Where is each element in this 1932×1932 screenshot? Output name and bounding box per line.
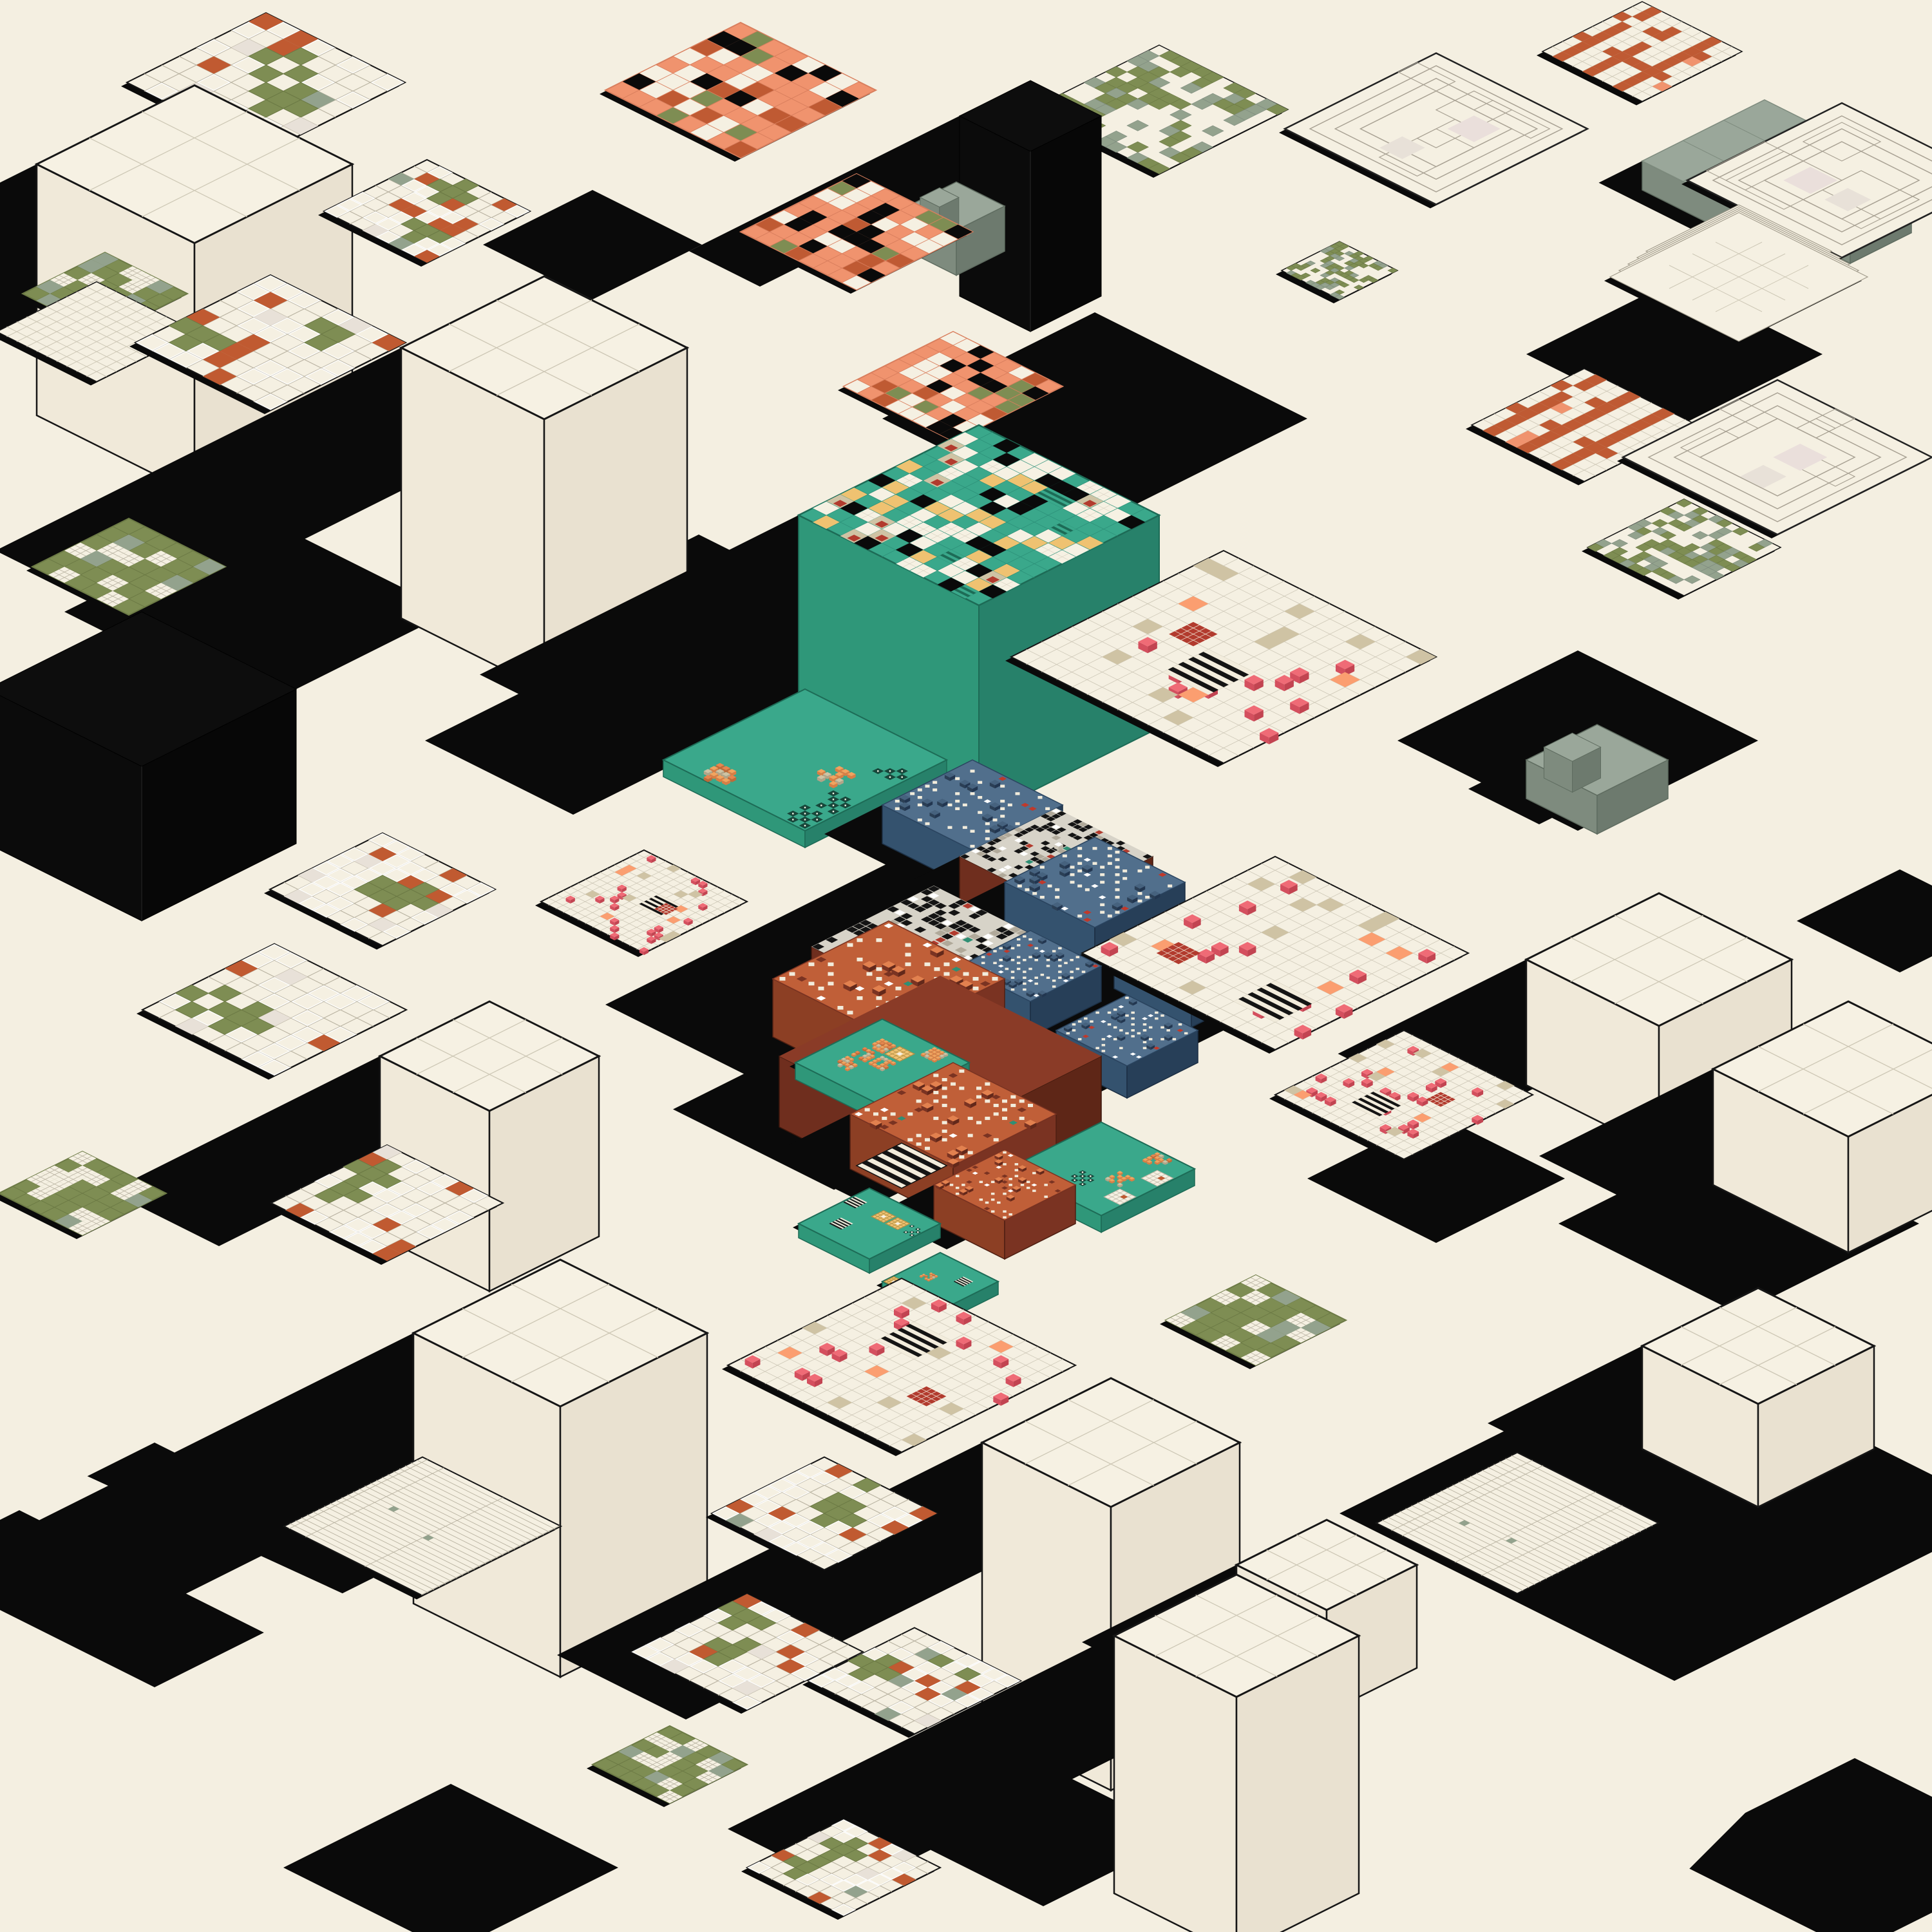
iso-city-canvas <box>0 0 1932 1932</box>
page: { "canvas": { "w": 3000, "h": 3000, "bg"… <box>0 0 1932 1932</box>
isometric-artwork <box>0 0 1932 1932</box>
